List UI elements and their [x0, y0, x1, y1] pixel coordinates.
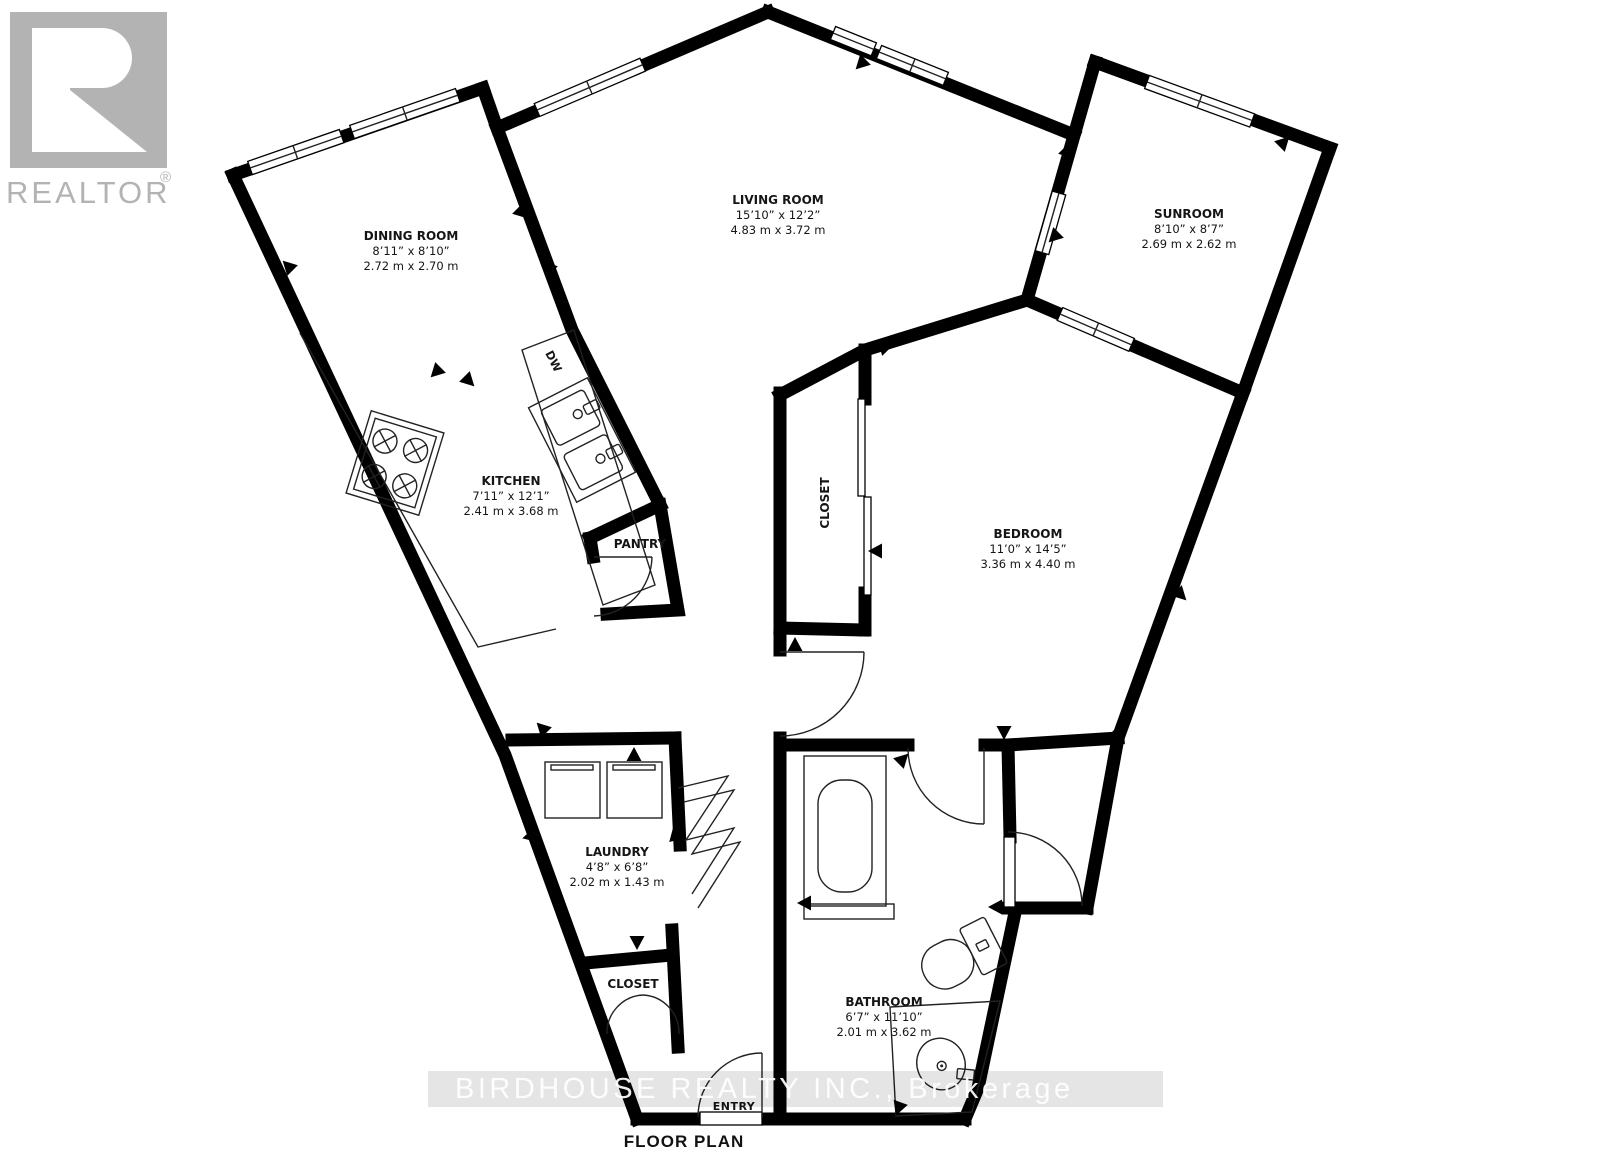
- room-dims-imperial: 6’7” x 11’10”: [845, 1010, 922, 1024]
- washer-icon: [545, 762, 600, 818]
- floor-plan-svg: DINING ROOM 8’11” x 8’10” 2.72 m x 2.70 …: [0, 0, 1600, 1154]
- direction-arrow-icon: [425, 362, 446, 383]
- room-dims-imperial: 7’11” x 12’1”: [472, 489, 549, 503]
- window: [350, 89, 460, 139]
- room-dims-imperial: 8’11” x 8’10”: [372, 244, 449, 258]
- window: [1145, 75, 1255, 127]
- direction-arrow-icon: [630, 936, 645, 950]
- closet-sliding-doors: [858, 399, 871, 595]
- dining-room-label: DINING ROOM 8’11” x 8’10” 2.72 m x 2.70 …: [363, 229, 458, 273]
- plan-title: FLOOR PLAN: [624, 1132, 745, 1151]
- window: [1057, 308, 1134, 352]
- room-dims-imperial: 15’10” x 12’2”: [736, 208, 821, 222]
- sunroom-label: SUNROOM 8’10” x 8’7” 2.69 m x 2.62 m: [1141, 207, 1236, 251]
- pantry-label: PANTRY: [614, 537, 667, 551]
- window: [248, 129, 344, 174]
- direction-arrow-icon: [988, 900, 1002, 915]
- bedroom-label: BEDROOM 11’0” x 14’5” 3.36 m x 4.40 m: [980, 527, 1075, 571]
- entry-closet-label: CLOSET: [607, 977, 659, 991]
- room-name: SUNROOM: [1154, 207, 1224, 221]
- room-dims-metric: 4.83 m x 3.72 m: [730, 223, 825, 237]
- registered-mark: ®: [160, 169, 171, 186]
- bathtub-icon: [804, 756, 894, 919]
- room-dims-imperial: 11’0” x 14’5”: [989, 542, 1066, 556]
- direction-arrow-icon: [627, 747, 642, 761]
- laundry-label: LAUNDRY 4’8” x 6’8” 2.02 m x 1.43 m: [569, 845, 664, 889]
- room-dims-imperial: 4’8” x 6’8”: [586, 860, 649, 874]
- room-name: DINING ROOM: [364, 229, 459, 243]
- kitchen-sink-icon: [529, 378, 636, 502]
- bedroom-door: [780, 652, 864, 736]
- floor-plan-page: DINING ROOM 8’11” x 8’10” 2.72 m x 2.70 …: [0, 0, 1600, 1154]
- room-name: LIVING ROOM: [732, 193, 824, 207]
- bedroom-closet-label: CLOSET: [818, 477, 832, 529]
- living-room-label: LIVING ROOM 15’10” x 12’2” 4.83 m x 3.72…: [730, 193, 825, 237]
- room-dims-metric: 2.41 m x 3.68 m: [463, 504, 558, 518]
- room-dims-imperial: 8’10” x 8’7”: [1154, 222, 1224, 236]
- room-name: BATHROOM: [845, 995, 922, 1009]
- walls: [233, 12, 1330, 1119]
- room-name: BEDROOM: [994, 527, 1063, 541]
- room-dims-metric: 2.69 m x 2.62 m: [1141, 237, 1236, 251]
- dryer-icon: [607, 762, 662, 818]
- direction-arrow-icon: [788, 637, 803, 651]
- room-dims-metric: 2.01 m x 3.62 m: [836, 1025, 931, 1039]
- window: [1035, 191, 1065, 254]
- realtor-logo: REALTOR ®: [6, 12, 171, 210]
- bathroom-label: BATHROOM 6’7” x 11’10” 2.01 m x 3.62 m: [836, 995, 931, 1039]
- dishwasher-label: DW: [542, 348, 565, 374]
- window: [534, 58, 645, 116]
- watermark-text: BIRDHOUSE REALTY INC., Brokerage: [455, 1073, 1074, 1105]
- room-dims-metric: 3.36 m x 4.40 m: [980, 557, 1075, 571]
- windows: [248, 27, 1255, 352]
- room-dims-metric: 2.02 m x 1.43 m: [569, 875, 664, 889]
- bathroom-door: [908, 748, 984, 824]
- kitchen-label: KITCHEN 7’11” x 12’1” 2.41 m x 3.68 m: [463, 474, 558, 518]
- direction-arrow-icon: [997, 726, 1012, 740]
- realtor-logo-text: REALTOR: [6, 175, 171, 210]
- room-dims-metric: 2.72 m x 2.70 m: [363, 259, 458, 273]
- closet-bifold-doors: [607, 995, 679, 1034]
- wall-break-symbol: [678, 776, 740, 908]
- direction-arrow-icon: [459, 371, 480, 392]
- room-name: LAUNDRY: [585, 845, 649, 859]
- room-name: KITCHEN: [481, 474, 540, 488]
- watermark: BIRDHOUSE REALTY INC., Brokerage: [428, 1071, 1163, 1107]
